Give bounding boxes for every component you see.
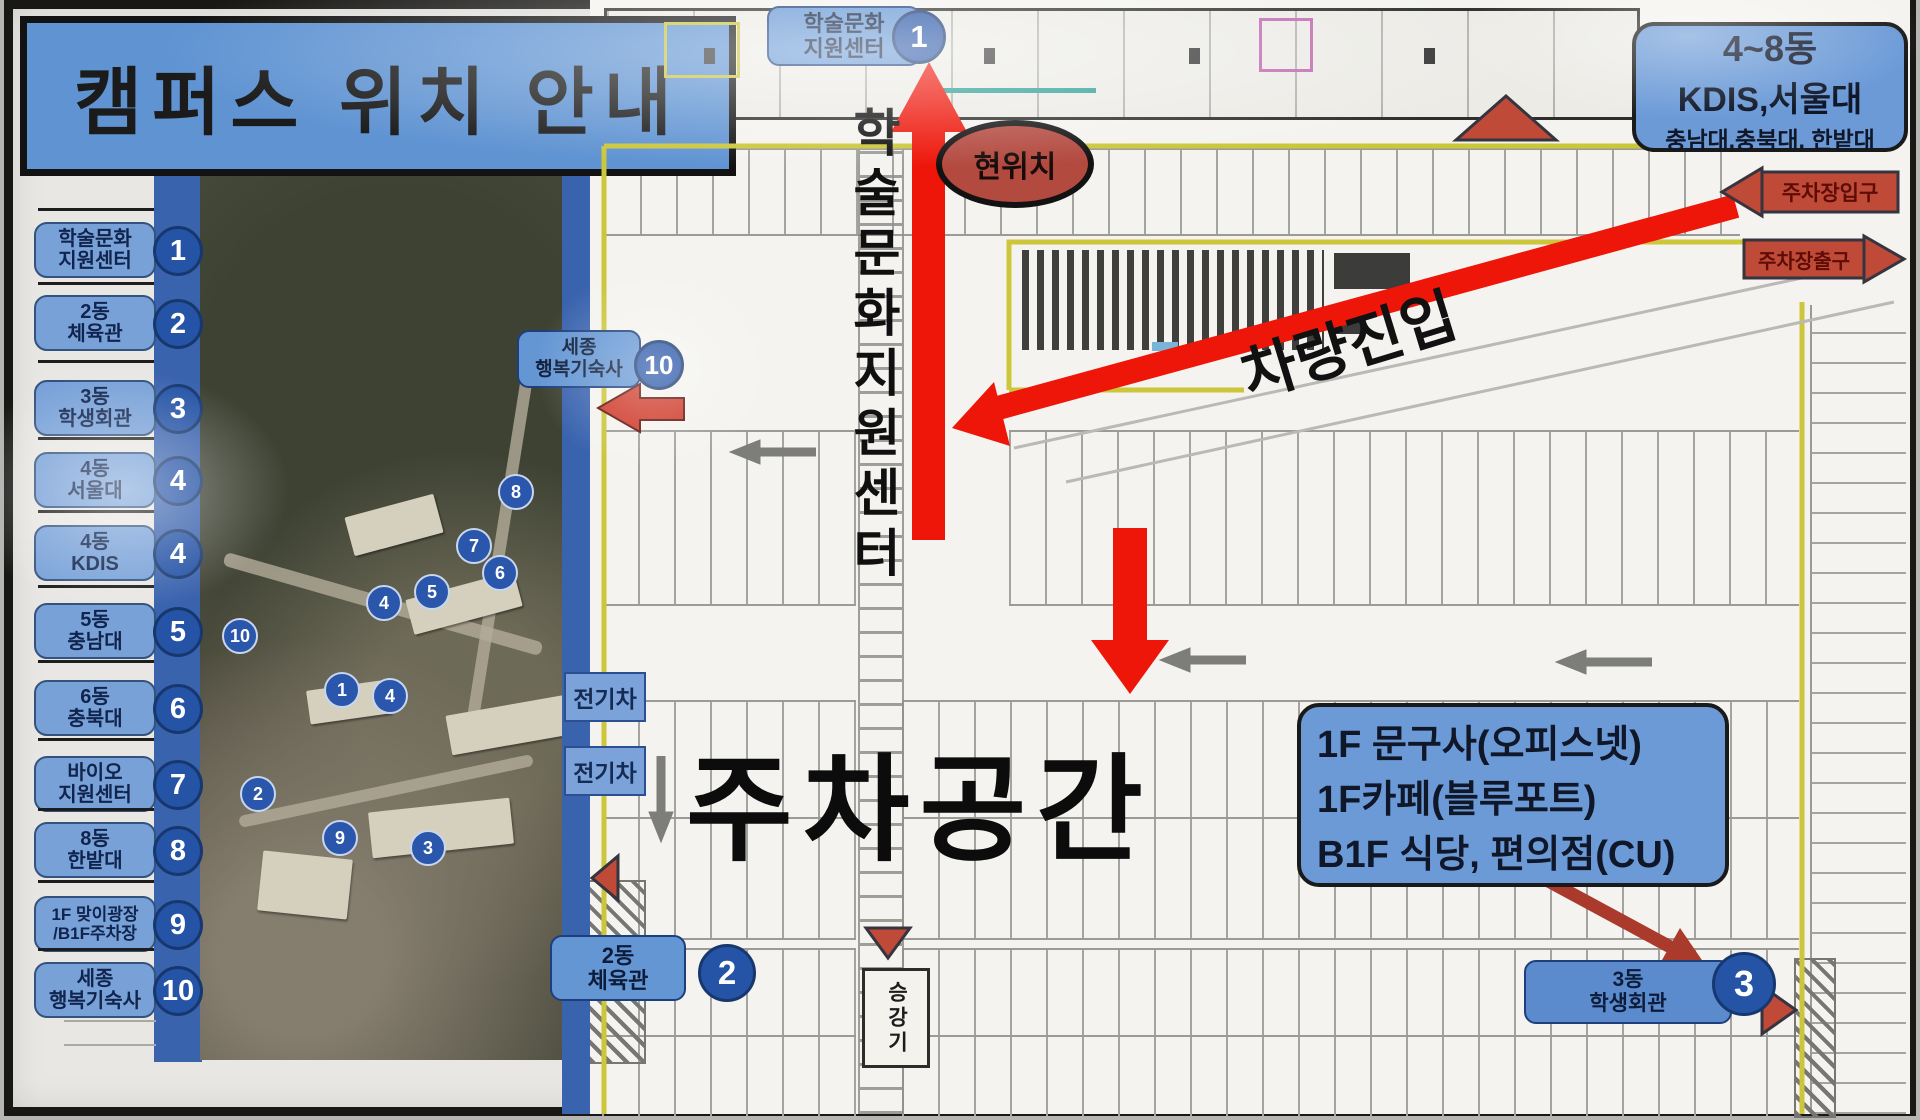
legend-number: 10 [153,966,203,1016]
door-mark [704,48,715,64]
info-box-line: B1F 식당, 편의점(CU) [1317,823,1725,878]
legend-item: 4동 서울대 [34,452,156,508]
campus-aerial-photo: 10 8 7 6 5 4 4 1 2 9 3 [200,165,562,1060]
map-number-10: 10 [634,340,684,390]
photo-circle: 7 [456,528,492,564]
legend-item: 6동 충북대 [34,680,156,736]
elevator-box: 승강기 [862,968,930,1068]
legend-line: 지원센터 [58,250,132,272]
map-number-3: 3 [1712,952,1776,1016]
legend-line: 체육관 [67,323,122,345]
info-box-line: 1F카페(블루포트) [1317,768,1725,823]
photo-circle: 3 [410,830,446,866]
door-mark [984,48,995,64]
legend-line: 8동 [80,828,110,850]
room-outline-pink [1259,18,1313,72]
legend-number: 4 [153,456,203,506]
legend-line: 6동 [80,686,110,708]
legend-number: 8 [153,826,203,876]
badge-line: 행복기숙사 [535,359,622,381]
legend-divider [38,208,154,211]
map-badge-student-hall: 3동 학생회관 [1524,960,1732,1024]
legend-item: 8동 한밭대 [34,822,156,878]
legend-divider [38,360,154,363]
legend-divider [38,282,154,285]
legend-number: 7 [153,760,203,810]
legend-divider [38,660,154,663]
sign-title-text: 캠퍼스 위치 안내 [74,43,682,150]
parking-stalls-row [1009,430,1799,606]
photo-circle: 2 [240,776,276,812]
badge-line: 학술문화 [804,11,885,36]
photo-building [344,494,443,556]
photo-circle: 1 [324,672,360,708]
photo-circle: 6 [482,555,518,591]
legend-item: 학술문화 지원센터 [34,222,156,278]
badge-line: 학생회관 [1589,992,1666,1016]
legend-number: 6 [153,684,203,734]
photo-circle: 8 [498,474,534,510]
legend-line: 한밭대 [67,850,122,872]
photo-circle: 5 [414,574,450,610]
floor-services-box: 1F 문구사(오피스넷) 1F카페(블루포트) B1F 식당, 편의점(CU) [1297,703,1729,887]
legend-line: 지원센터 [58,784,132,806]
legend-item: 4동 KDIS [34,525,156,581]
exit-label: 주차장출구 [1746,242,1862,276]
legend-item: 1F 맞이광장 /B1F주차장 [34,896,156,952]
parking-stalls-row [602,430,856,606]
legend-line: 4동 [80,458,110,480]
map-badge-gym: 2동 체육관 [550,935,686,1001]
legend-line: 5동 [80,609,110,631]
legend-line: 충남대 [67,631,122,653]
legend-line: 행복기숙사 [49,990,141,1012]
legend-divider [38,738,154,741]
photographed-sign: 학술문화 지원센터 1 현위치 학술문화지원센터 주차공간 차량진입 주차장입구… [0,0,1920,1120]
photo-circle: 4 [372,678,408,714]
legend-item: 5동 충남대 [34,603,156,659]
legend-number: 9 [153,900,203,950]
entrance-label: 주차장입구 [1764,174,1896,210]
legend-item: 세종 행복기숙사 [34,962,156,1018]
map-number-2: 2 [698,944,756,1002]
legend-line: /B1F주차장 [53,924,137,943]
legend-divider [38,510,154,513]
sign-title: 캠퍼스 위치 안내 [20,16,736,176]
badge-line: 세종 [562,337,597,359]
legend-line: 학생회관 [58,408,132,430]
map-number-1: 1 [892,10,946,64]
legend-line: 바이오 [67,762,122,784]
legend-line: 충북대 [67,708,122,730]
legend-divider [38,585,154,588]
room-outline-yellow [664,22,740,78]
legend-divider [38,880,154,883]
parking-area-label: 주차공간 [686,716,1153,884]
legend-line: 1F 맞이광장 [51,905,138,924]
blue-dash [1152,342,1178,351]
legend-divider [38,808,154,811]
ev-charging-label: 전기차 [564,746,646,796]
legend-line: 서울대 [67,480,122,502]
hatched-zone [1794,958,1836,1118]
room-accent-teal [916,88,1096,93]
legend-line: 2동 [80,301,110,323]
legend-blank-line [64,1044,156,1046]
photo-building [257,850,353,919]
elevator-label: 승강기 [881,981,911,1056]
badge-line: 체육관 [588,968,649,993]
legend-line: 3동 [80,386,110,408]
photo-building [445,695,562,756]
photo-circle: 9 [322,820,358,856]
building-footprint [604,8,1640,120]
legend-item: 바이오 지원센터 [34,756,156,812]
buildings-4-8-box: 4~8동 KDIS,서울대 충남대,충북대, 한밭대 [1632,22,1908,152]
legend-number: 3 [153,384,203,434]
buildings-box-line: KDIS,서울대 [1678,72,1863,121]
legend-number: 5 [153,607,203,657]
badge-line: 지원센터 [804,36,885,61]
legend-number: 1 [153,226,203,276]
ev-charging-label: 전기차 [564,672,646,722]
legend-blank-line [64,1020,156,1022]
campus-guide-sign: 학술문화 지원센터 1 현위치 학술문화지원센터 주차공간 차량진입 주차장입구… [4,0,1916,1116]
badge-line: 2동 [602,943,634,968]
legend-divider [38,948,154,951]
legend-item: 2동 체육관 [34,295,156,351]
photo-circle: 4 [366,585,402,621]
info-box-line: 1F 문구사(오피스넷) [1317,713,1725,768]
legend-number: 4 [153,529,203,579]
door-mark [1424,48,1435,64]
legend-item: 3동 학생회관 [34,380,156,436]
buildings-box-line: 4~8동 [1723,20,1817,72]
legend-divider [38,437,154,440]
buildings-box-line: 충남대,충북대, 한밭대 [1665,121,1875,155]
legend-line: 세종 [77,968,114,990]
legend-number: 2 [153,299,203,349]
door-mark [1189,48,1200,64]
current-location-marker: 현위치 [936,120,1094,208]
vertical-route-label: 학술문화지원센터 [847,106,898,586]
current-location-label: 현위치 [974,142,1057,186]
legend-line: KDIS [71,553,119,575]
photo-circle: 10 [222,618,258,654]
legend-line: 학술문화 [58,228,132,250]
map-badge-dormitory: 세종 행복기숙사 [517,330,641,388]
parking-stalls-row [604,148,1740,236]
stall-divider-line [902,1035,1799,1037]
legend-line: 4동 [80,531,110,553]
badge-line: 3동 [1613,968,1644,992]
